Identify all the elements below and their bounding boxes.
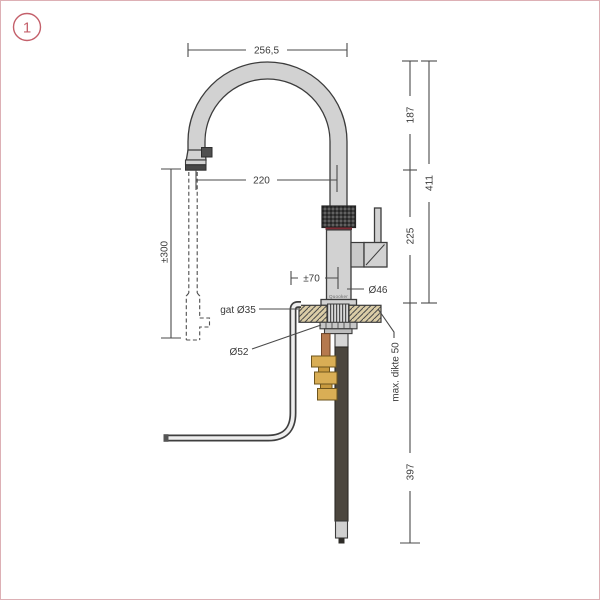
brand-label: Quooker [329,294,348,299]
pullout-head-right-edge [197,293,200,318]
valve-connector-2 [321,384,333,389]
faucet-dimension-diagram: Quooker [0,0,600,600]
copper-pipe [322,334,331,357]
threaded-shank [328,304,350,323]
countertop-right [349,305,381,322]
figure-badge-number: 1 [23,20,31,37]
countertop-left [299,305,327,322]
valve-connector-1 [319,367,330,372]
valve-assembly [312,356,338,400]
dim-body-diameter-label: Ø46 [369,285,388,296]
spray-head-tip [186,165,207,170]
dim-max-thickness: max. dikte 50 [378,309,402,402]
dim-total-height-label: 411 [425,175,436,191]
mounting-nut [325,329,353,334]
dim-lower-height-label: 225 [406,227,417,244]
dim-base-diameter-label: Ø52 [230,347,249,358]
gooseneck-inner-edge [205,79,330,206]
faucet-drawing: Quooker [164,62,388,544]
dim-hole-diameter-label: gat Ø35 [220,305,256,316]
handle-pin [375,208,382,243]
dim-heights-inner: 187 225 397 [400,61,420,543]
flexible-hose-core [166,305,301,439]
dim-hose-pullout-label: ±300 [160,240,171,263]
dispenser-tube-top [335,334,348,348]
dim-top-width-label: 256,5 [254,46,279,57]
valve-block-2 [315,372,338,384]
pullout-hose-dashed-outline [186,172,209,340]
dispenser-tube-bottom [336,521,348,538]
technical-drawing-page: Quooker [0,0,600,600]
dim-body-diameter: Ø46 [347,285,388,296]
knurled-ring [322,206,356,228]
valve-block-1 [312,356,337,367]
valve-block-3 [318,389,338,401]
dim-top-width: 256,5 [188,43,347,57]
spray-head-cap [186,160,207,165]
spray-button [202,148,213,158]
hose-end-cap [164,434,169,442]
dim-hose-pullout: ±300 [160,169,182,338]
dispenser-tube-tip [339,538,345,544]
dim-hole-diameter: gat Ø35 [220,305,298,316]
flexible-hose-outline [166,305,301,439]
pullout-button-outline [200,318,210,340]
dim-upper-height-label: 187 [406,106,417,123]
handle-arm [351,243,364,268]
dim-handle-offset-label: ±70 [303,274,320,285]
dim-base-diameter: Ø52 [230,325,321,358]
dim-max-thickness-label: max. dikte 50 [391,342,402,402]
dim-spout-reach-label: 220 [253,176,270,187]
dim-spout-reach: 220 [196,165,337,192]
dim-total-height: 411 [421,61,437,303]
page-frame-border [1,1,600,600]
figure-badge: 1 [14,14,41,41]
dim-under-counter-label: 397 [406,463,417,480]
pullout-head-left-edge [186,293,189,340]
